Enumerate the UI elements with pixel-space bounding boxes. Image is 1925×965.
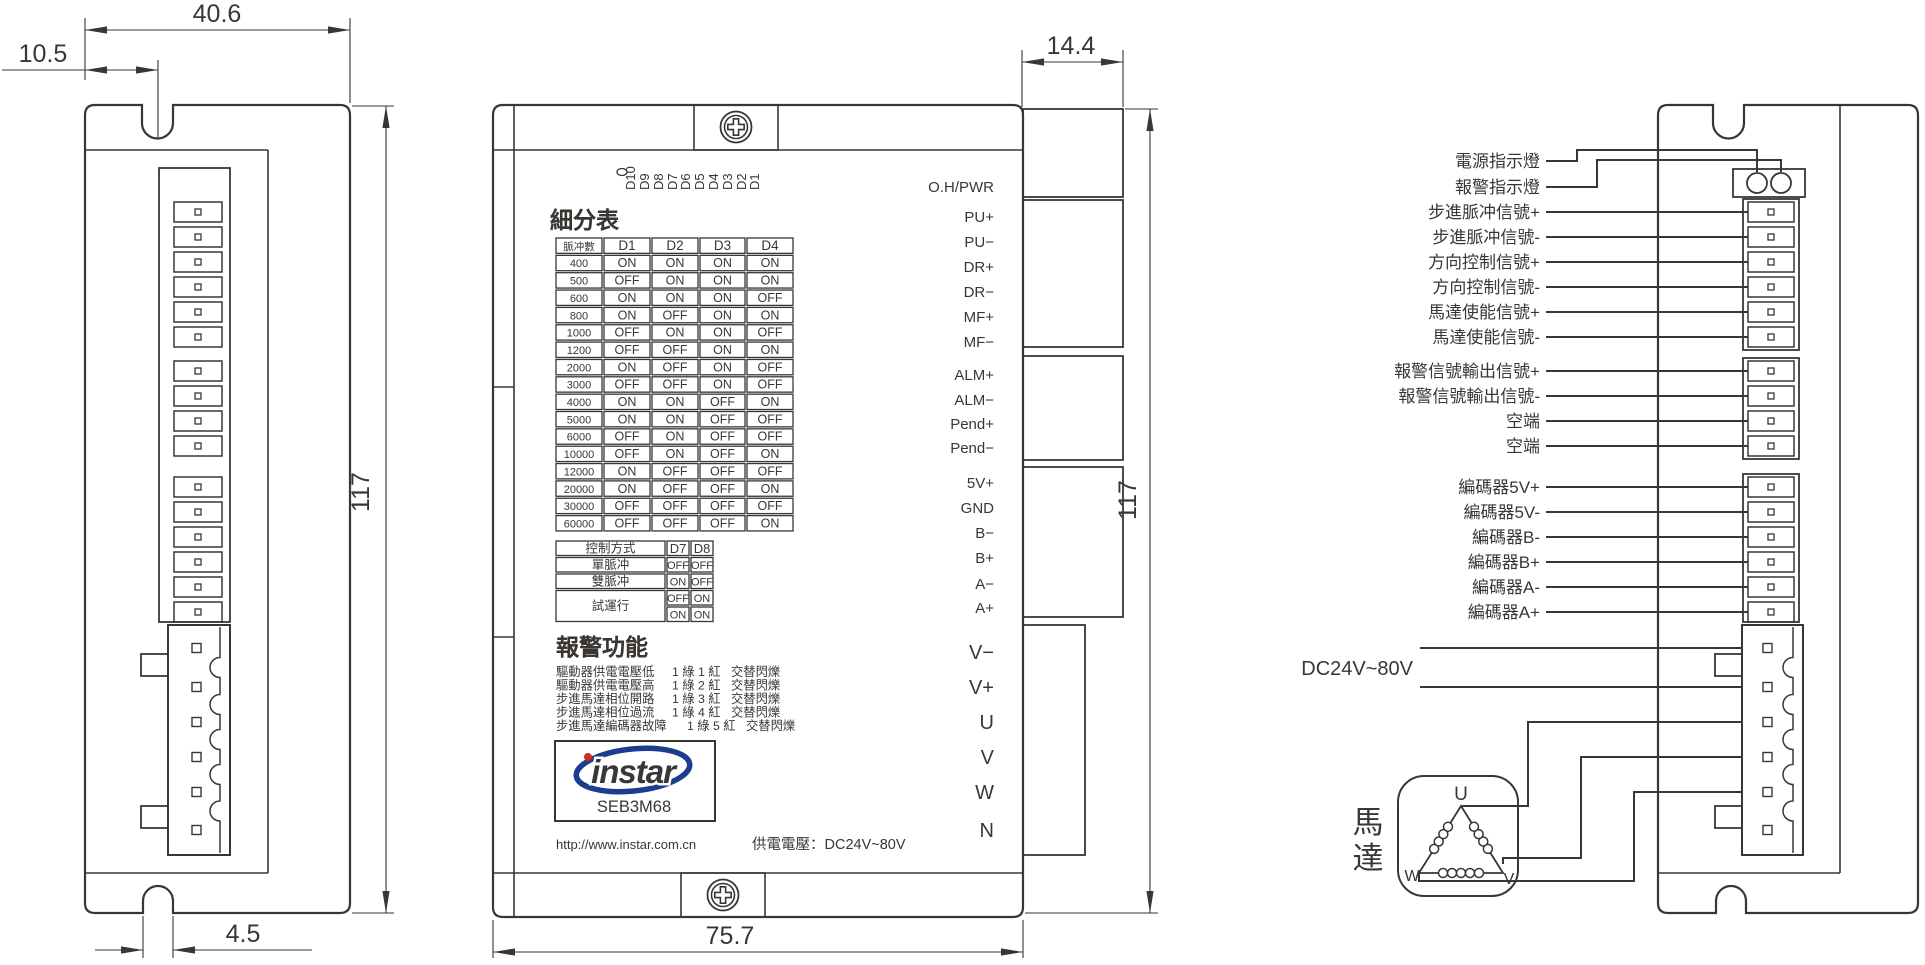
background <box>0 0 1925 965</box>
table-cell-text: 2000 <box>567 362 591 374</box>
alarm-mode: 交替閃爍 <box>731 678 780 693</box>
table-cell-text: OFF <box>667 560 689 572</box>
alarm-cause: 步進馬達相位開路 <box>556 691 654 706</box>
table-cell-text: 1000 <box>567 328 591 340</box>
table-cell-text: ON <box>761 516 780 530</box>
table-cell-text: OFF <box>710 516 735 530</box>
wiring-label: 步進脈冲信號- <box>1432 228 1540 247</box>
technical-drawing-page: D10D9D8D7D6D5D4D3D2D1脈冲數D1D2D3D4400ONONO… <box>0 0 1925 965</box>
terminal-silkscreen-label: ALM− <box>954 392 994 409</box>
alarm-cause: 步進馬達編碼器故障 <box>556 718 667 733</box>
table-cell-text: ON <box>670 609 687 621</box>
table-cell-text: ON <box>618 291 637 305</box>
table-cell-text: ON <box>666 256 685 270</box>
alarm-code: 1 綠 5 紅 <box>687 719 736 733</box>
wiring-label: 空端 <box>1506 437 1540 456</box>
wiring-label: 空端 <box>1506 412 1540 431</box>
terminal-silkscreen-label: ALM+ <box>954 367 994 384</box>
dim-width-top: 40.6 <box>193 0 242 28</box>
terminal-silkscreen-label: V <box>981 747 995 769</box>
motor-name-char: 達 <box>1353 841 1384 876</box>
wiring-label: 編碼器B+ <box>1468 553 1540 572</box>
table-cell-text: OFF <box>758 412 783 426</box>
dim-notch-offset: 10.5 <box>19 40 68 68</box>
table-cell-text: OFF <box>615 378 640 392</box>
terminal-silkscreen-label: PU− <box>964 234 994 251</box>
table-cell-text: ON <box>666 412 685 426</box>
terminal-silkscreen-label: DR+ <box>964 259 995 276</box>
coil-icon <box>1466 869 1475 878</box>
dim-height-front: 117 <box>1114 480 1142 520</box>
table-cell-text: OFF <box>663 378 688 392</box>
dim-height-side: 117 <box>347 472 375 512</box>
table-cell-text: OFF <box>663 343 688 357</box>
wiring-label: 馬達使能信號- <box>1432 327 1540 347</box>
dip-label: D3 <box>720 173 735 190</box>
table-cell-text: D4 <box>761 238 779 253</box>
table-cell-text: 60000 <box>564 518 595 530</box>
table-cell-text: OFF <box>663 499 688 513</box>
table-cell-text: 單脈冲 <box>592 557 630 572</box>
alarm-mode: 交替閃爍 <box>746 718 795 733</box>
table-cell-text: ON <box>666 326 685 340</box>
table-cell-text: 30000 <box>564 501 595 513</box>
table-cell-text: ON <box>618 256 637 270</box>
table-cell-text: OFF <box>615 430 640 444</box>
terminal-silkscreen-label: A− <box>975 576 994 593</box>
table-cell-text: ON <box>761 482 780 496</box>
wiring-label: 報警指示燈 <box>1455 178 1540 197</box>
dip-label: D10 <box>623 166 638 190</box>
wiring-label: 編碼器A- <box>1472 578 1540 597</box>
table-cell-text: ON <box>713 308 732 322</box>
table-cell-text: ON <box>713 256 732 270</box>
wiring-label: 方向控制信號+ <box>1428 253 1540 272</box>
dip-label: D8 <box>651 173 666 190</box>
table-cell-text: OFF <box>667 593 689 605</box>
logo-url: http://www.instar.com.cn <box>556 837 696 852</box>
table-cell-text: OFF <box>663 360 688 374</box>
table-cell-text: OFF <box>758 291 783 305</box>
terminal-silkscreen-label: U <box>980 712 994 734</box>
wiring-label: 方向控制信號- <box>1432 278 1540 297</box>
screw-icon <box>721 112 752 143</box>
table-cell-text: ON <box>618 412 637 426</box>
terminal-silkscreen-label: PU+ <box>964 209 994 226</box>
logo-red-dot-icon <box>584 753 592 761</box>
table-cell-text: 脈冲數 <box>563 240 595 253</box>
table-cell-text: 10000 <box>564 449 595 461</box>
table-cell-text: ON <box>713 291 732 305</box>
table-cell-text: ON <box>618 482 637 496</box>
alarm-cause: 步進馬達相位過流 <box>556 705 654 720</box>
terminal-silkscreen-label: W <box>975 782 994 804</box>
table-cell-text: D1 <box>618 238 635 253</box>
table-cell-text: ON <box>694 609 711 621</box>
table-cell-text: OFF <box>758 464 783 478</box>
table-cell-text: OFF <box>615 326 640 340</box>
wiring-label: 編碼器A+ <box>1468 603 1540 622</box>
table-cell-text: ON <box>713 326 732 340</box>
table-cell-text: 600 <box>570 293 588 305</box>
table-cell-text: 4000 <box>567 397 591 409</box>
dc-supply-label: DC24V~80V <box>1301 658 1413 680</box>
table-cell-text: OFF <box>615 499 640 513</box>
table-cell-text: OFF <box>710 430 735 444</box>
motor-pin-w: W <box>1404 868 1420 885</box>
coil-icon <box>1470 822 1479 831</box>
terminal-silkscreen-label: DR− <box>964 284 995 301</box>
table-cell-text: ON <box>694 593 711 605</box>
alarm-title: 報警功能 <box>556 634 648 660</box>
table-cell-text: D3 <box>714 238 731 253</box>
table-cell-text: ON <box>761 308 780 322</box>
table-cell-text: OFF <box>663 482 688 496</box>
wiring-label: 編碼器5V- <box>1463 503 1540 522</box>
coil-icon <box>1475 869 1484 878</box>
alarm-mode: 交替閃爍 <box>731 705 780 720</box>
table-cell-text: OFF <box>615 516 640 530</box>
table-cell-text: ON <box>618 360 637 374</box>
terminal-silkscreen-label: 5V+ <box>967 475 994 492</box>
alarm-cause: 驅動器供電電壓低 <box>556 665 654 679</box>
coil-icon <box>1439 869 1448 878</box>
table-cell-text: 800 <box>570 310 588 322</box>
table-cell-text: OFF <box>663 308 688 322</box>
table-cell-text: 20000 <box>564 484 595 496</box>
terminal-silkscreen-label: MF+ <box>964 309 995 326</box>
table-cell-text: 3000 <box>567 380 591 392</box>
microstep-table-title: 細分表 <box>550 207 619 233</box>
table-cell-text: ON <box>618 395 637 409</box>
coil-icon <box>1448 869 1457 878</box>
table-cell-text: OFF <box>758 499 783 513</box>
wiring-label: 報警信號輸出信號- <box>1398 387 1540 406</box>
table-cell-text: ON <box>618 308 637 322</box>
terminal-silkscreen-label: MF− <box>964 334 995 351</box>
table-cell-text: ON <box>666 430 685 444</box>
table-cell-text: 6000 <box>567 432 591 444</box>
table-cell-text: ON <box>666 291 685 305</box>
table-cell-text: OFF <box>710 412 735 426</box>
table-cell-text: OFF <box>710 395 735 409</box>
table-cell-text: ON <box>761 256 780 270</box>
table-cell-text: ON <box>666 274 685 288</box>
terminal-silkscreen-label: Pend+ <box>950 416 994 433</box>
table-cell-text: OFF <box>615 343 640 357</box>
power-note: 供電電壓：DC24V~80V <box>752 836 906 853</box>
terminal-silkscreen-label: GND <box>961 500 995 517</box>
table-cell-text: 400 <box>570 258 588 270</box>
table-cell-text: D2 <box>666 238 683 253</box>
table-cell-text: ON <box>670 576 687 588</box>
alarm-cause: 驅動器供電電壓高 <box>556 678 654 693</box>
wiring-label: 電源指示燈 <box>1455 152 1540 171</box>
dip-label: D9 <box>637 173 652 190</box>
table-cell-text: OFF <box>710 482 735 496</box>
table-cell-text: ON <box>713 378 732 392</box>
table-cell-text: 雙脈冲 <box>592 573 630 588</box>
table-cell-text: OFF <box>663 516 688 530</box>
table-cell-text: 12000 <box>564 466 595 478</box>
table-cell-text: OFF <box>691 576 713 588</box>
terminal-silkscreen-label: B− <box>975 525 994 542</box>
wiring-label: 報警信號輸出信號+ <box>1394 362 1540 381</box>
table-cell-text: 500 <box>570 276 588 288</box>
coil-icon <box>1443 822 1452 831</box>
table-cell-text: ON <box>713 360 732 374</box>
dim-connector-depth: 14.4 <box>1047 32 1096 60</box>
table-cell-text: OFF <box>758 378 783 392</box>
alarm-code: 1 綠 3 紅 <box>672 692 721 706</box>
table-cell-text: ON <box>713 343 732 357</box>
table-cell-text: OFF <box>758 360 783 374</box>
dim-width-front: 75.7 <box>706 922 755 950</box>
table-cell-text: OFF <box>615 447 640 461</box>
alarm-code: 1 綠 2 紅 <box>672 679 721 693</box>
table-cell-text: OFF <box>710 447 735 461</box>
dip-label: D6 <box>678 173 693 190</box>
motor-name-char: 馬 <box>1353 805 1384 840</box>
alarm-code: 1 綠 4 紅 <box>672 706 721 720</box>
table-cell-text: D8 <box>694 541 711 556</box>
table-cell-text: OFF <box>710 499 735 513</box>
table-cell-text: OFF <box>691 560 713 572</box>
coil-icon <box>1457 869 1466 878</box>
table-cell-text: ON <box>761 395 780 409</box>
wiring-label: 編碼器5V+ <box>1458 478 1540 497</box>
table-cell-text: ON <box>761 274 780 288</box>
terminal-silkscreen-label: B+ <box>975 550 994 567</box>
stepper-driver-drawing: D10D9D8D7D6D5D4D3D2D1脈冲數D1D2D3D4400ONONO… <box>0 0 1925 965</box>
table-cell-text: 試運行 <box>592 598 630 613</box>
wiring-label: 馬達使能信號+ <box>1428 302 1540 322</box>
dip-label: D5 <box>692 173 707 190</box>
motor-pin-u: U <box>1454 784 1468 805</box>
terminal-silkscreen-label: A+ <box>975 600 994 617</box>
terminal-silkscreen-label: V− <box>969 642 994 664</box>
motor-pin-v: V <box>1504 871 1515 888</box>
dip-label: D4 <box>706 173 721 190</box>
terminal-silkscreen-label: N <box>980 820 994 842</box>
table-cell-text: OFF <box>710 464 735 478</box>
wiring-label: 編碼器B- <box>1472 528 1540 547</box>
alarm-code: 1 綠 1 紅 <box>672 665 721 679</box>
logo-model: SEB3M68 <box>597 798 671 816</box>
table-cell-text: ON <box>713 274 732 288</box>
alarm-mode: 交替閃爍 <box>731 664 780 679</box>
table-cell-text: ON <box>761 343 780 357</box>
table-cell-text: 控制方式 <box>585 540 636 555</box>
table-cell-text: 1200 <box>567 345 591 357</box>
table-cell-text: OFF <box>758 326 783 340</box>
table-cell-text: OFF <box>615 274 640 288</box>
logo-brand: instar <box>591 753 678 790</box>
table-cell-text: ON <box>666 447 685 461</box>
alarm-mode: 交替閃爍 <box>731 691 780 706</box>
table-cell-text: ON <box>618 464 637 478</box>
table-cell-text: 5000 <box>567 414 591 426</box>
terminal-silkscreen-label: Pend− <box>950 440 994 457</box>
terminal-silkscreen-label: O.H/PWR <box>928 179 994 196</box>
wiring-label: 步進脈冲信號+ <box>1428 203 1540 222</box>
dim-slot-width: 4.5 <box>226 920 261 948</box>
terminal-silkscreen-label: V+ <box>969 677 994 699</box>
table-cell-text: ON <box>761 447 780 461</box>
table-cell-text: OFF <box>758 430 783 444</box>
screw-icon <box>708 880 739 911</box>
table-cell-text: ON <box>666 395 685 409</box>
dip-label: D1 <box>747 173 762 190</box>
table-cell-text: OFF <box>663 464 688 478</box>
table-cell-text: D7 <box>670 541 687 556</box>
